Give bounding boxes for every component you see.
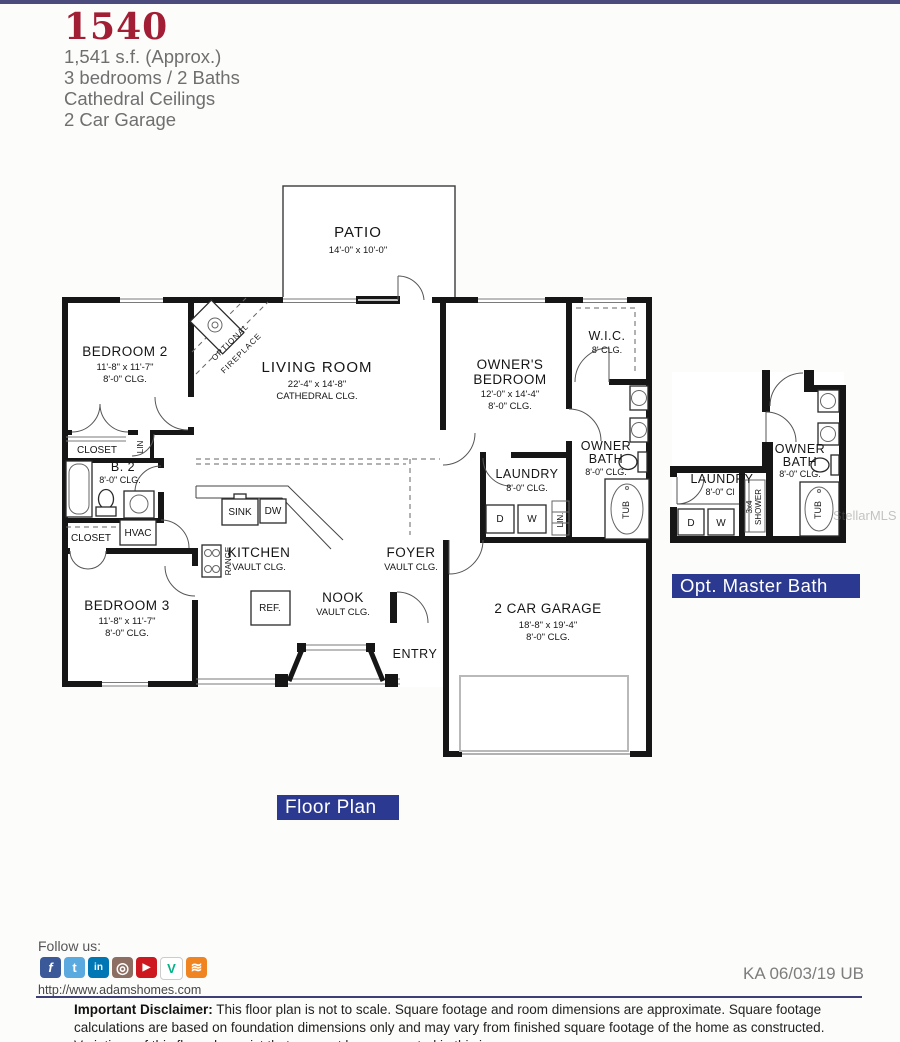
social-icons-row: f t in ◎ ▶ V ≋ <box>40 957 207 980</box>
rss-icon: ≋ <box>186 957 207 978</box>
twitter-icon: t <box>64 957 85 978</box>
opt-laundry-label: LAUNDRY <box>690 472 753 486</box>
floor-plan-drawing: OPTIONAL FIREPLACE <box>0 0 900 1042</box>
entry-label: ENTRY <box>393 647 438 661</box>
svg-text:BATH: BATH <box>589 452 623 466</box>
svg-text:8'-0" CLG.: 8'-0" CLG. <box>779 469 820 479</box>
facebook-icon: f <box>40 957 61 978</box>
svg-text:BATH: BATH <box>783 455 817 469</box>
floor-background <box>62 186 652 757</box>
opt-master-bath-title: Opt. Master Bath <box>672 574 860 598</box>
dw-label: DW <box>265 506 282 517</box>
svg-text:18'-8" x 19'-4": 18'-8" x 19'-4" <box>519 620 577 631</box>
closet-label: CLOSET <box>77 445 117 456</box>
svg-text:8' CLG.: 8' CLG. <box>592 345 622 355</box>
laundry-label: LAUNDRY <box>495 467 558 481</box>
flyer-page: 1540 1,541 s.f. (Approx.) 3 bedrooms / 2… <box>0 0 900 1042</box>
svg-text:8'-0" CLG.: 8'-0" CLG. <box>585 467 626 477</box>
website-url: http://www.adamshomes.com <box>38 983 201 997</box>
dryer-label: D <box>496 514 503 525</box>
wic-label: W.I.C. <box>588 329 625 343</box>
instagram-icon: ◎ <box>112 957 133 978</box>
porch-column <box>385 674 398 687</box>
bedroom3-label: BEDROOM 3 <box>84 598 170 613</box>
bedroom2-label: BEDROOM 2 <box>82 344 168 359</box>
opt-shower-label: 3x4 <box>745 500 754 513</box>
linkedin-icon: in <box>88 957 109 978</box>
svg-text:W: W <box>716 518 726 529</box>
svg-text:VAULT CLG.: VAULT CLG. <box>232 562 286 573</box>
disclaimer-lead: Important Disclaimer: <box>74 1002 213 1017</box>
bath2-toilet <box>99 490 114 509</box>
svg-text:11'-8" x 11'-7": 11'-8" x 11'-7" <box>98 616 155 627</box>
svg-text:8'-0" CLG.: 8'-0" CLG. <box>526 632 570 643</box>
svg-text:8'-0" CLG.: 8'-0" CLG. <box>105 628 149 639</box>
footer-divider <box>36 996 862 998</box>
washer-label: W <box>527 514 537 525</box>
svg-text:VAULT CLG.: VAULT CLG. <box>384 562 438 573</box>
svg-text:SHOWER: SHOWER <box>754 489 763 525</box>
svg-text:VAULT CLG.: VAULT CLG. <box>316 607 370 618</box>
svg-text:8'-0" CLG.: 8'-0" CLG. <box>103 374 147 385</box>
garage-door <box>460 676 628 751</box>
floor-plan-title: Floor Plan <box>277 795 399 820</box>
nook-label: NOOK <box>322 590 364 605</box>
svg-text:TUB: TUB <box>813 501 823 519</box>
svg-text:22'-4" x 14'-8": 22'-4" x 14'-8" <box>288 379 346 390</box>
owner-bath-label: OWNER <box>581 439 631 453</box>
svg-text:11'-8" x 11'-7": 11'-8" x 11'-7" <box>96 362 153 373</box>
patio-label: PATIO <box>334 224 382 241</box>
revision-code: KA 06/03/19 UB <box>743 964 864 984</box>
disclaimer: Important Disclaimer: This floor plan is… <box>74 1001 886 1042</box>
mls-watermark: StellarMLS <box>833 508 900 523</box>
owners-bedroom-label: OWNER'S <box>477 357 544 372</box>
kitchen-label: KITCHEN <box>228 545 291 560</box>
living-room-label: LIVING ROOM <box>261 359 372 376</box>
hvac-label: HVAC <box>124 528 151 539</box>
follow-us-label: Follow us: <box>38 938 101 954</box>
entry-wall-stub <box>390 592 397 623</box>
vine-icon: V <box>160 957 183 980</box>
svg-text:8'-0" Cl: 8'-0" Cl <box>706 487 735 497</box>
youtube-icon: ▶ <box>136 957 157 978</box>
ref-label: REF. <box>259 603 281 614</box>
svg-text:D: D <box>687 518 694 529</box>
svg-text:BEDROOM: BEDROOM <box>473 372 546 387</box>
sink-label: SINK <box>228 507 252 518</box>
patio-outline <box>283 186 455 299</box>
svg-text:8'-0" CLG.: 8'-0" CLG. <box>99 475 140 485</box>
opt-owner-bath-label: OWNER <box>775 442 825 456</box>
bath2-label: B. 2 <box>111 460 135 474</box>
porch-column <box>275 674 288 687</box>
garage-label: 2 CAR GARAGE <box>494 601 601 616</box>
patio-dims: 14'-0" x 10'-0" <box>329 245 387 256</box>
lin-closet-label: LIN <box>136 441 145 454</box>
closet2-label: CLOSET <box>71 533 111 544</box>
svg-text:CATHEDRAL CLG.: CATHEDRAL CLG. <box>276 391 357 402</box>
lin-label: LIN. <box>556 513 565 528</box>
foyer-label: FOYER <box>386 545 435 560</box>
tub-label: TUB <box>621 501 631 519</box>
range-label: RANGE <box>224 547 233 575</box>
svg-text:8'-0" CLG.: 8'-0" CLG. <box>506 483 547 493</box>
svg-text:8'-0" CLG.: 8'-0" CLG. <box>488 401 532 412</box>
svg-text:12'-0" x 14'-4": 12'-0" x 14'-4" <box>481 389 539 400</box>
